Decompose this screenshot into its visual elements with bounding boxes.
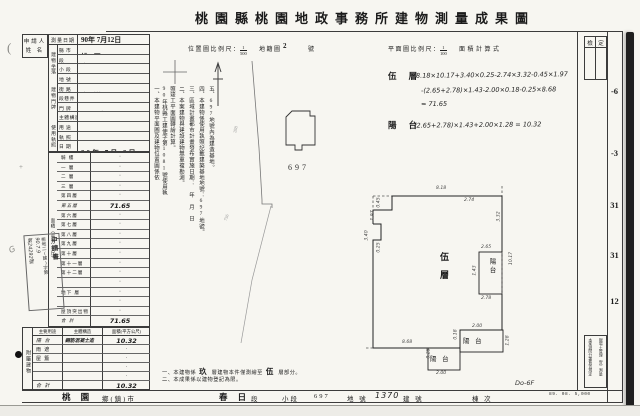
dimension-label: 3.40 [365, 230, 370, 240]
dimension-label: 8.18 [436, 186, 446, 191]
note1-floor-measured: 伍 [266, 367, 276, 376]
plan-room-label: 伍層 [438, 252, 451, 288]
regulation-note-box: 現場土管理（宜）測量 本案測問分署負責規定 [584, 335, 607, 388]
plan-room-label: 陽 台 [430, 353, 451, 363]
parcel-boundary-line [252, 61, 272, 208]
strip-cell: 段 [251, 393, 260, 403]
plan-room-label: 陽台 [486, 258, 496, 275]
dimension-label: 2.00 [436, 371, 446, 376]
strip-cell: 1370 [375, 391, 399, 400]
plan-room-label: 陽 台 [463, 335, 484, 345]
bottom-note-2: 二、本成果係以建物登記為限。 [162, 376, 242, 383]
dimension-label: 1.28 [506, 335, 511, 345]
dimension-label: 1.97 [371, 210, 376, 220]
dimension-label: 3.32 [497, 211, 502, 221]
formula-floor-result: = 71.65 [421, 100, 447, 108]
print-run-code: 89. 08. 5,000 [549, 392, 591, 397]
handwritten-unit-annotation: Do-6F [515, 379, 534, 387]
parcel-number-label: 697 [288, 163, 309, 172]
strip-cell: 春 日 [219, 391, 250, 403]
strip-cell: 小段 [282, 393, 299, 403]
dimension-label: 1.43 [473, 265, 478, 275]
note1-floor-count: 玖 [199, 367, 209, 376]
formula-floor-line1: 8.18×10.17+3.40×0.25-2.74×3.32-0.45×1.97 [416, 70, 568, 80]
dimension-label: 2.78 [481, 296, 491, 301]
survey-cross-icon [163, 60, 187, 84]
dimension-label: 2.65 [481, 245, 491, 250]
regulation-note-right: 現場土管理（宜）測量 [598, 338, 603, 385]
strip-cell: 建 號 [403, 393, 424, 403]
parcel-boundary-line-2 [241, 206, 271, 343]
formula-floor-line2: -(2.65+2.78)×1.43-2.00×0.18-0.25×8.68 [421, 85, 556, 94]
dimension-label: 0.25 [427, 348, 432, 358]
north-arrow-icon [213, 63, 223, 106]
regulation-note-left: 本案測問分署負責規定 [588, 338, 593, 385]
strip-cell: 鄉(鎮)市 [102, 393, 136, 403]
dimension-label: 10.17 [509, 252, 514, 265]
strip-cell: 地 號 [347, 393, 368, 403]
strip-cell: 桃 園 [62, 391, 93, 403]
dimension-label: 0.25 [377, 242, 382, 252]
formula-balcony-line: (2.65+2.78)×1.43+2.00×1.28 = 10.32 [414, 120, 541, 129]
dimension-label: 0.18 [454, 329, 459, 339]
dimension-label: 0.45 [377, 197, 382, 207]
dimension-label: 2.00 [472, 324, 482, 329]
strip-cell: 697 [314, 393, 330, 400]
survey-drawing [0, 0, 640, 416]
dimension-label: 2.74 [464, 198, 474, 203]
note1-suffix: 層部分。 [278, 370, 301, 376]
survey-result-sheet: ( G + 桃園縣桃園地政事務所建物測量成果圖 位置圖比例尺： 1500 地籍圖… [0, 0, 640, 416]
building-footprint [286, 111, 315, 150]
dimension-label: 8.68 [402, 340, 412, 345]
strip-cell: 棟 次 [472, 393, 493, 403]
bottom-strip-cells: 桃 園鄉(鎮)市春 日段小段697地 號1370建 號棟 次 [22, 390, 607, 403]
